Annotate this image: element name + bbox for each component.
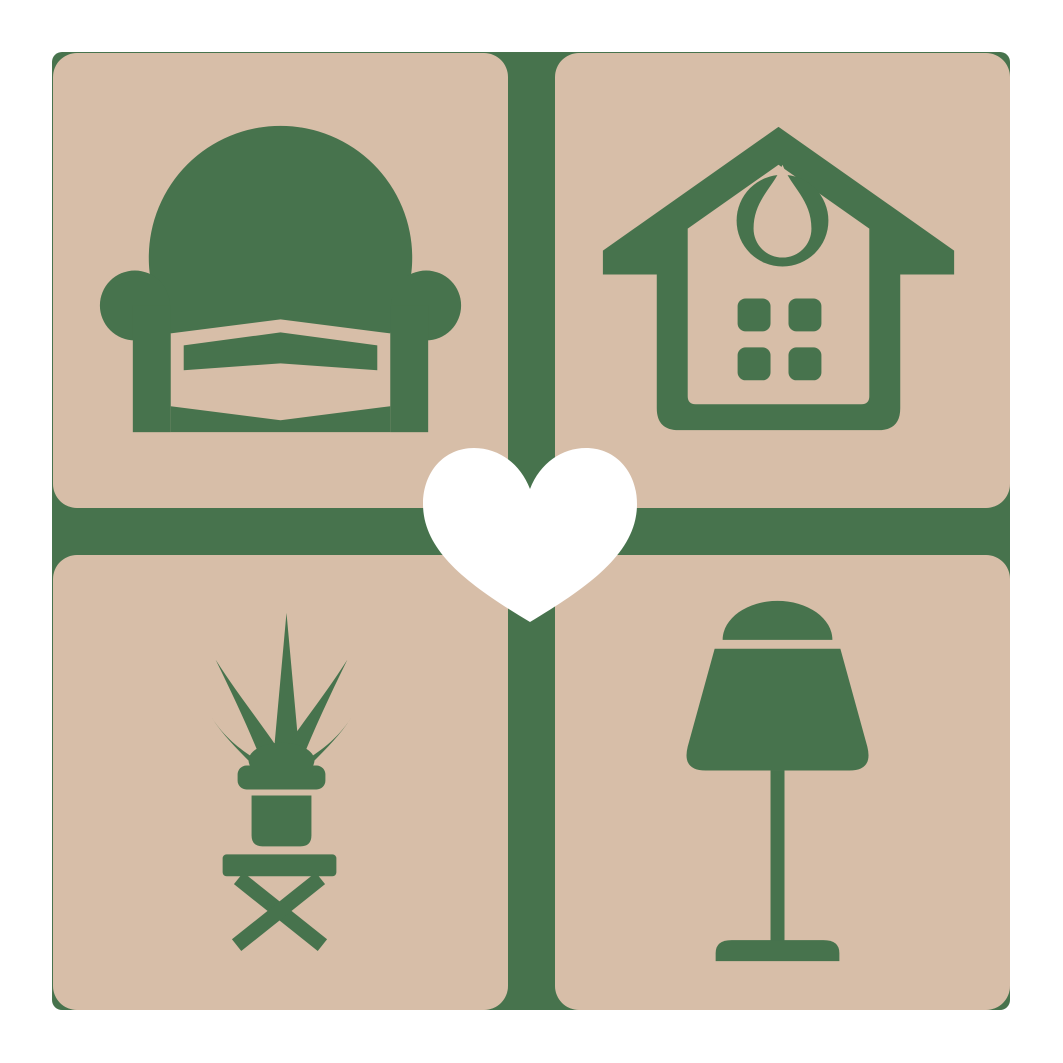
lamp-cap: [723, 601, 833, 640]
house-window-bottom-right: [788, 347, 821, 380]
plant-shapes: [212, 613, 352, 945]
plant-icon: [53, 555, 508, 1010]
armchair-icon: [53, 53, 508, 508]
heart-shape: [423, 448, 637, 622]
house-window-bottom-left: [738, 347, 771, 380]
house-icon: [555, 53, 1010, 508]
house-outline: [603, 127, 954, 430]
armchair-rail: [171, 406, 391, 432]
armchair-cushion: [184, 332, 378, 370]
lamp-shapes: [687, 601, 869, 961]
lamp-stem: [771, 771, 785, 943]
tile-armchair: [53, 53, 508, 508]
plant-pot-rim: [238, 766, 326, 790]
house-shapes: [603, 127, 954, 430]
lamp-icon: [555, 555, 1010, 1010]
house-window-top-left: [738, 298, 771, 331]
armchair-leg-right: [390, 305, 428, 432]
tile-house: [555, 53, 1010, 508]
tile-lamp: [555, 555, 1010, 1010]
stool-top: [223, 854, 337, 876]
armchair-shapes: [100, 126, 461, 432]
logo-canvas: [0, 0, 1063, 1063]
armchair-leg-left: [133, 305, 171, 432]
lamp-shade: [687, 649, 869, 771]
lamp-base: [716, 940, 840, 961]
tile-plant: [53, 555, 508, 1010]
armchair-back: [149, 126, 412, 334]
house-window-top-right: [788, 298, 821, 331]
heart-icon: [423, 447, 637, 623]
plant-pot-body: [252, 795, 312, 846]
